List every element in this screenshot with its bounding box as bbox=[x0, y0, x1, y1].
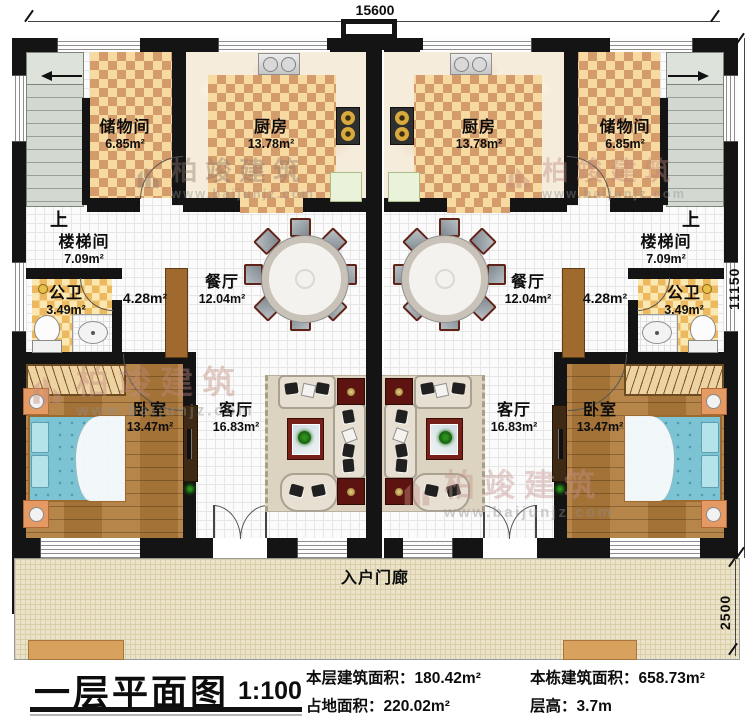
sofa-bottom bbox=[412, 473, 470, 512]
room-label-stairwell: 楼梯间 7.09m² bbox=[34, 234, 134, 267]
pillow bbox=[701, 422, 719, 453]
entry-door-left-leaf bbox=[535, 505, 537, 538]
stat-building-area: 本栋建筑面积：658.73m² bbox=[530, 666, 705, 688]
stairs-up-label: 上 bbox=[682, 206, 700, 232]
side-table bbox=[385, 378, 413, 405]
stair-landing bbox=[26, 52, 84, 86]
pillow bbox=[31, 455, 49, 488]
room-label-storage: 储物间 6.85m² bbox=[575, 119, 675, 152]
dimension-right-value: 11150 bbox=[726, 240, 742, 310]
nightstand bbox=[23, 388, 49, 415]
kitchen-tile-pass bbox=[240, 198, 303, 213]
room-label-bedroom: 卧室 13.47m² bbox=[550, 402, 650, 435]
toilet-tank bbox=[32, 340, 62, 353]
side-table bbox=[337, 478, 365, 505]
kitchen-sink bbox=[258, 53, 300, 75]
window bbox=[418, 38, 532, 52]
kitchen-counter bbox=[388, 172, 420, 202]
room-label-bathroom: 公卫 3.49m² bbox=[634, 285, 734, 318]
room-label-bedroom: 卧室 13.47m² bbox=[100, 402, 200, 435]
room-label-kitchen: 厨房 13.78m² bbox=[221, 119, 321, 152]
table-plant bbox=[439, 431, 452, 444]
wall bbox=[453, 538, 483, 560]
drawing-scale: 1:100 bbox=[238, 677, 302, 706]
window bbox=[218, 38, 332, 52]
table-plant bbox=[298, 431, 311, 444]
porch-step bbox=[28, 640, 124, 660]
wall bbox=[384, 538, 403, 560]
unit-right: 储物间 6.85m² 厨房 13.78m² 楼梯间 7.09m² 上 公卫 3.… bbox=[384, 38, 738, 560]
sofa-top bbox=[278, 375, 336, 409]
door-opening bbox=[213, 538, 267, 560]
window bbox=[40, 538, 142, 560]
nightstand bbox=[701, 500, 727, 528]
stair-direction-line bbox=[668, 75, 698, 77]
room-label-living: 客厅 16.83m² bbox=[186, 402, 286, 435]
title-underline bbox=[30, 707, 302, 712]
window bbox=[608, 38, 693, 52]
room-label-corridor: 4.28m² bbox=[567, 290, 643, 307]
toilet-tank bbox=[688, 340, 718, 353]
kitchen-counter bbox=[330, 172, 362, 202]
wall bbox=[537, 538, 610, 560]
bathroom-sink bbox=[642, 321, 672, 344]
stair-landing bbox=[666, 52, 724, 86]
flue-box bbox=[341, 19, 397, 39]
gas-stove bbox=[336, 107, 360, 145]
small-plant bbox=[186, 485, 194, 493]
wall bbox=[347, 538, 366, 560]
pillow bbox=[701, 455, 719, 488]
window bbox=[297, 538, 349, 560]
sofa-bottom bbox=[280, 473, 338, 512]
party-wall-head bbox=[327, 38, 423, 50]
side-table bbox=[337, 378, 365, 405]
party-wall bbox=[366, 38, 382, 560]
stairs-up-label: 上 bbox=[50, 206, 68, 232]
door-opening bbox=[483, 538, 537, 560]
nightstand bbox=[23, 500, 49, 528]
wall bbox=[140, 538, 213, 560]
wall bbox=[532, 38, 610, 52]
wall bbox=[87, 198, 140, 212]
room-label-living: 客厅 16.83m² bbox=[464, 402, 564, 435]
room-label-dining: 餐厅 12.04m² bbox=[172, 274, 272, 307]
unit-left: 储物间 6.85m² 厨房 13.78m² 楼梯间 7.09m² 上 公卫 3.… bbox=[12, 38, 366, 560]
wall bbox=[610, 198, 663, 212]
stair-direction-arrow bbox=[698, 71, 709, 81]
floor-plan: 15600 bbox=[0, 0, 750, 722]
wall bbox=[183, 198, 240, 212]
dimension-top-value: 15600 bbox=[300, 2, 450, 18]
dimension-line-right bbox=[744, 38, 745, 558]
stair-direction-line bbox=[52, 75, 82, 77]
side-table bbox=[385, 478, 413, 505]
gas-stove bbox=[390, 107, 414, 145]
window bbox=[724, 75, 738, 142]
kitchen-tile-pass bbox=[447, 198, 510, 213]
bathroom-sink bbox=[78, 321, 108, 344]
stat-footprint: 占地面积：220.02m² bbox=[306, 694, 450, 716]
porch-step bbox=[563, 640, 637, 660]
room-label-kitchen: 厨房 13.78m² bbox=[429, 119, 529, 152]
room-label-bathroom: 公卫 3.49m² bbox=[16, 285, 116, 318]
stat-floor-height: 层高：3.7m bbox=[530, 694, 612, 716]
small-plant bbox=[556, 485, 564, 493]
sofa-right bbox=[333, 403, 366, 479]
stat-floor-area: 本层建筑面积：180.42m² bbox=[306, 666, 481, 688]
kitchen-sink bbox=[450, 53, 492, 75]
wall bbox=[510, 198, 567, 212]
nightstand bbox=[701, 388, 727, 415]
entry-door-left-leaf bbox=[213, 505, 215, 538]
window bbox=[401, 538, 453, 560]
window bbox=[608, 538, 710, 560]
pillow bbox=[31, 422, 49, 453]
room-label-stairwell: 楼梯间 7.09m² bbox=[616, 234, 716, 267]
room-label-dining: 餐厅 12.04m² bbox=[478, 274, 578, 307]
stair-direction-arrow bbox=[41, 71, 52, 81]
window bbox=[12, 75, 26, 142]
sofa-right bbox=[384, 403, 417, 479]
toilet bbox=[34, 315, 60, 343]
wall bbox=[140, 38, 218, 52]
porch-label: 入户门廊 bbox=[275, 570, 475, 588]
round-dining-table bbox=[262, 236, 348, 322]
title-underline-2 bbox=[30, 714, 302, 716]
toilet bbox=[690, 315, 716, 343]
wall bbox=[267, 538, 297, 560]
dimension-porch-value: 2500 bbox=[717, 578, 733, 630]
round-dining-table bbox=[402, 236, 488, 322]
window bbox=[57, 38, 142, 52]
room-label-storage: 储物间 6.85m² bbox=[75, 119, 175, 152]
